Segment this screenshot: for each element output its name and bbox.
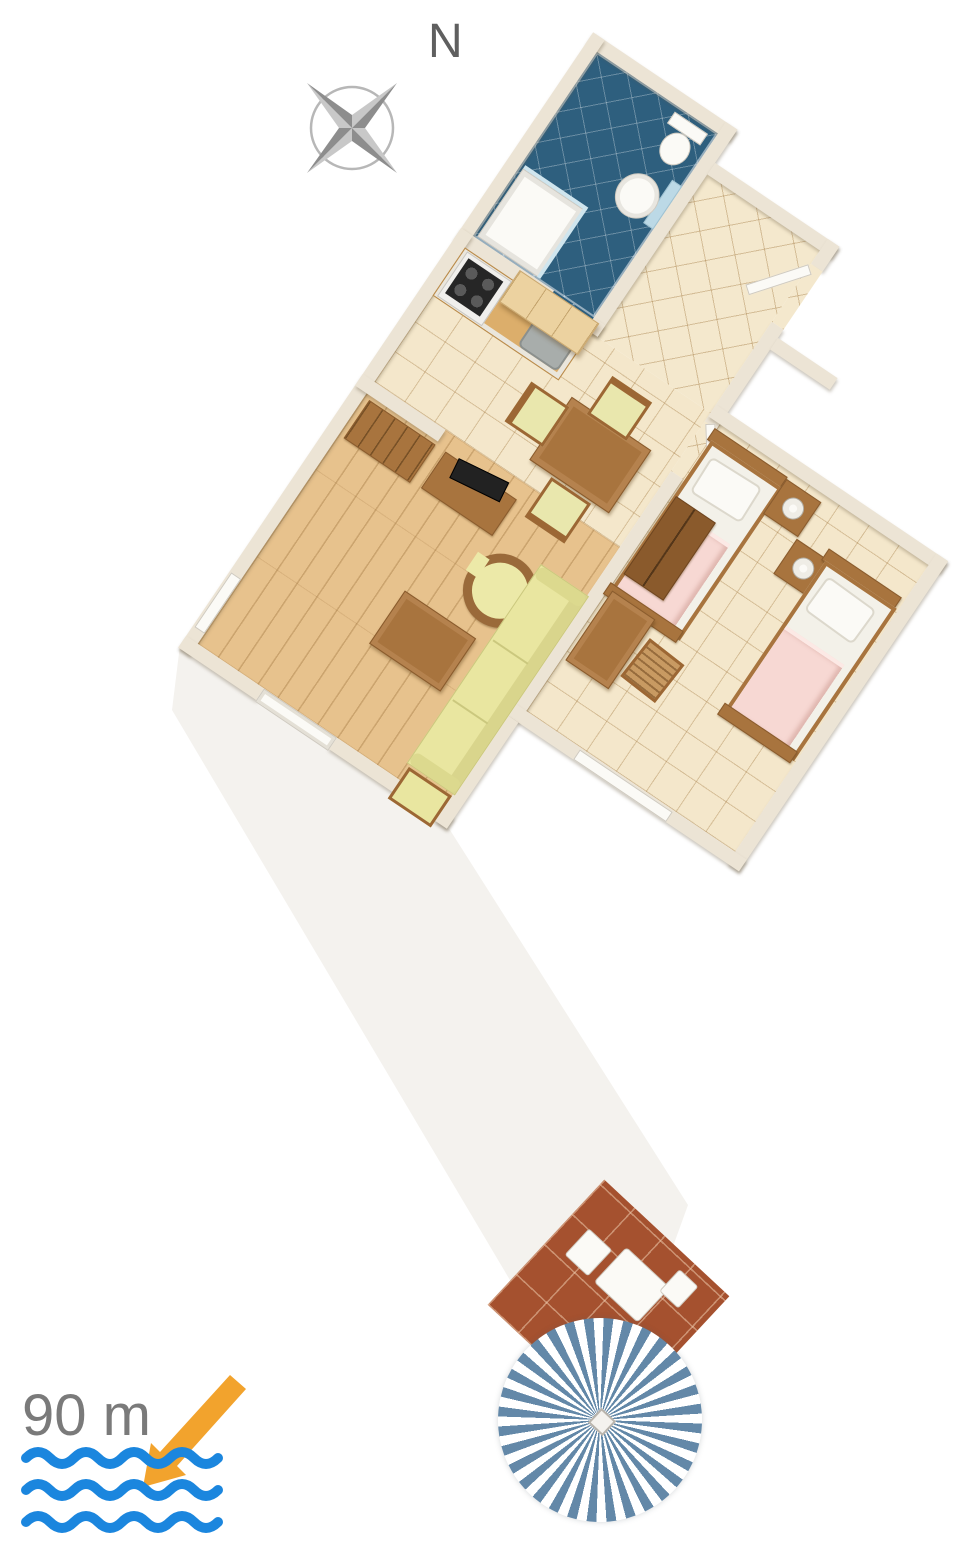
lamp xyxy=(778,493,809,524)
parasol-pole xyxy=(588,1408,616,1436)
floor-plan-page: N xyxy=(0,0,960,1544)
sofa-cushion-seam xyxy=(452,699,488,724)
sea-waves-icon xyxy=(18,1442,228,1538)
north-label: N xyxy=(428,14,463,69)
parasol-icon xyxy=(498,1318,702,1522)
sofa-cushion-seam xyxy=(493,640,529,665)
terrace-chair xyxy=(659,1269,698,1309)
entry-porch-wall xyxy=(770,338,838,390)
compass-rose-icon xyxy=(270,20,450,200)
terrace-table xyxy=(594,1247,671,1323)
